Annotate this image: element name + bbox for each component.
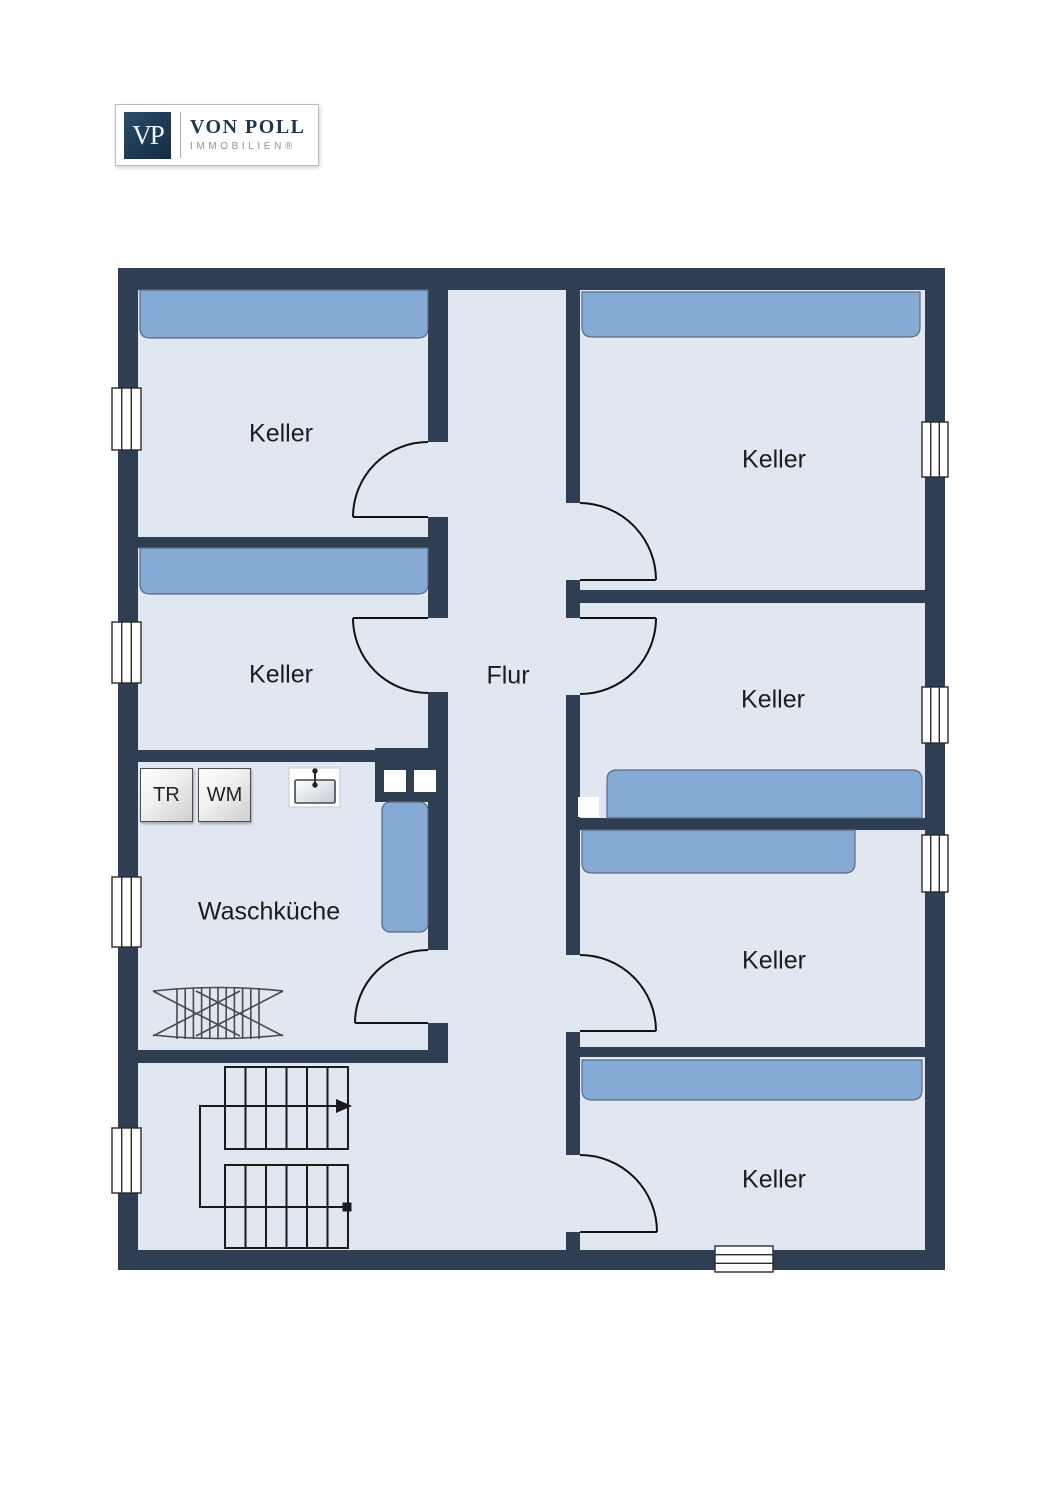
door-opening-waschkueche bbox=[428, 950, 448, 1023]
room-label-flur: Flur bbox=[486, 662, 529, 691]
sink-icon bbox=[289, 768, 340, 807]
window-right-2 bbox=[922, 687, 948, 743]
door-opening-top-left bbox=[428, 442, 448, 517]
floor-plan-drawing bbox=[0, 0, 1060, 1500]
window-left-1 bbox=[112, 388, 141, 450]
window-bottom bbox=[715, 1246, 773, 1272]
shelf-waschkueche-vertical bbox=[382, 802, 428, 932]
room-label-waschkueche: Waschküche bbox=[198, 898, 340, 927]
window-left-3 bbox=[112, 877, 141, 947]
shelf-keller-top-left bbox=[140, 290, 428, 338]
room-label-keller-mid-right: Keller bbox=[741, 686, 805, 715]
shelf-keller-bottom-right bbox=[582, 1060, 922, 1100]
room-label-keller-top-left: Keller bbox=[249, 420, 313, 449]
window-left-2 bbox=[112, 622, 141, 683]
shelf-keller-top-right bbox=[582, 292, 920, 337]
door-opening-mid-right bbox=[566, 618, 580, 695]
room-label-keller-mid-left: Keller bbox=[249, 661, 313, 690]
door-opening-bottom-right bbox=[566, 1155, 580, 1232]
door-opening-mid-left bbox=[428, 618, 448, 692]
room-label-keller-bottom-right: Keller bbox=[742, 1166, 806, 1195]
floor-flur bbox=[448, 290, 566, 1250]
door-opening-top-right bbox=[566, 503, 580, 580]
room-label-keller-top-right: Keller bbox=[742, 446, 806, 475]
room-label-keller-lower-right: Keller bbox=[742, 947, 806, 976]
window-right-3 bbox=[922, 835, 948, 892]
chimney-flue-icon bbox=[578, 797, 599, 817]
window-right-1 bbox=[922, 422, 948, 477]
chimney-flue-icon bbox=[384, 770, 406, 792]
dryer-box: TR bbox=[140, 768, 193, 822]
chimney-flue-icon bbox=[414, 770, 436, 792]
washing-machine-box: WM bbox=[198, 768, 251, 822]
page: VP VON POLL IMMOBILIEN® bbox=[0, 0, 1060, 1500]
shelf-keller-mid-left bbox=[140, 548, 428, 594]
window-left-4 bbox=[112, 1128, 141, 1193]
shelf-keller-lower-right bbox=[582, 830, 855, 873]
shelf-keller-mid-right bbox=[607, 770, 922, 818]
door-opening-lower-right bbox=[566, 955, 580, 1032]
